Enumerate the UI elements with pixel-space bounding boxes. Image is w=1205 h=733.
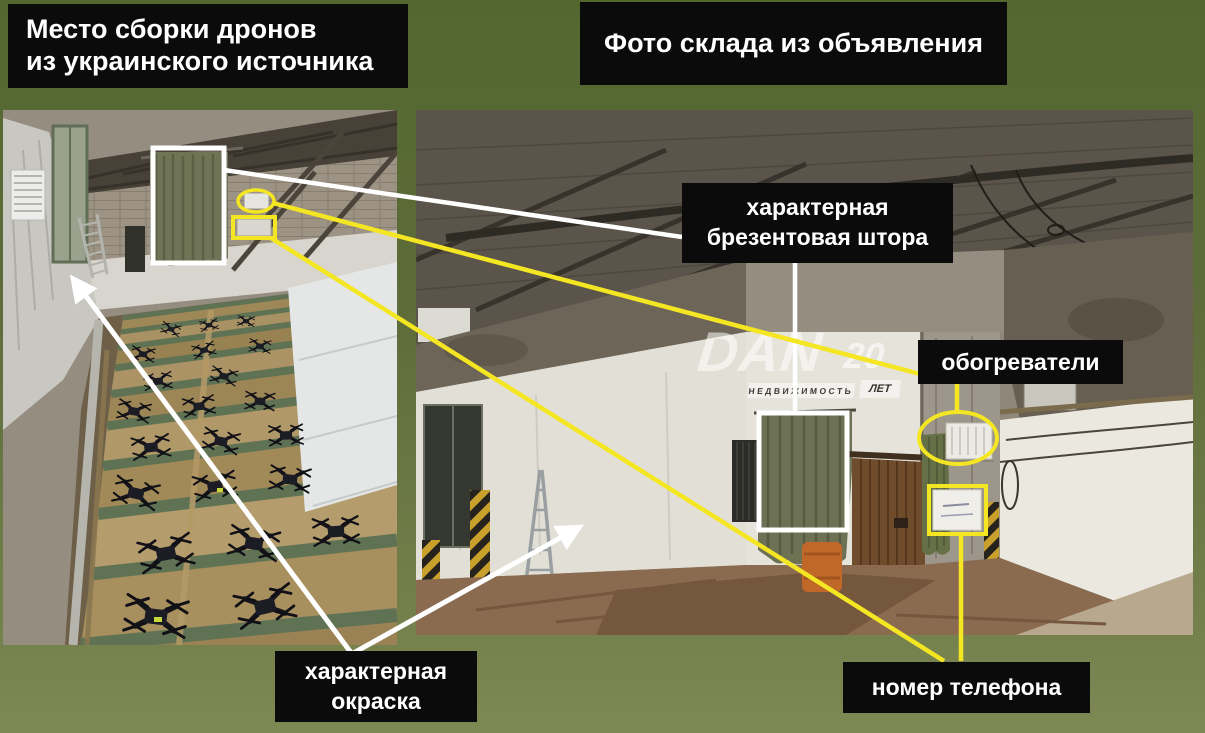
title-warehouse-listing: Фото склада из объявления — [580, 2, 1007, 85]
photo-left-svg — [3, 110, 397, 645]
metal-sheets — [288, 262, 397, 512]
hazard-post — [470, 490, 490, 585]
left-ac-unit — [11, 170, 45, 220]
title-drone-assembly: Место сборки дронов из украинского источ… — [8, 4, 408, 88]
annotation-label-heaters: обогреватели — [918, 340, 1123, 384]
photo-drone-assembly-site — [3, 110, 397, 645]
tarp-curtain-right-photo — [754, 410, 856, 565]
wall-stain — [1068, 298, 1164, 342]
infographic-canvas: DAN 20 НЕДВИЖИМОСТЬ ЛЕТ Место сборки дро… — [0, 0, 1205, 733]
left-wall-heater — [244, 193, 269, 209]
phone-number-sign — [933, 490, 981, 530]
heater-unit — [946, 423, 994, 461]
annotation-label-paint: характерная окраска — [275, 651, 477, 722]
wall-stain — [444, 334, 528, 366]
gate-lock — [894, 518, 908, 528]
annotation-label-phone: номер телефона — [843, 662, 1090, 713]
radiator — [732, 440, 760, 522]
left-dark-doorway — [125, 226, 145, 272]
wooden-gate — [846, 454, 932, 568]
orange-barrel — [802, 542, 842, 592]
left-wall-sign — [237, 219, 271, 236]
annotation-label-curtain: характерная брезентовая штора — [682, 183, 953, 263]
left-tarp-curtain — [150, 152, 228, 266]
